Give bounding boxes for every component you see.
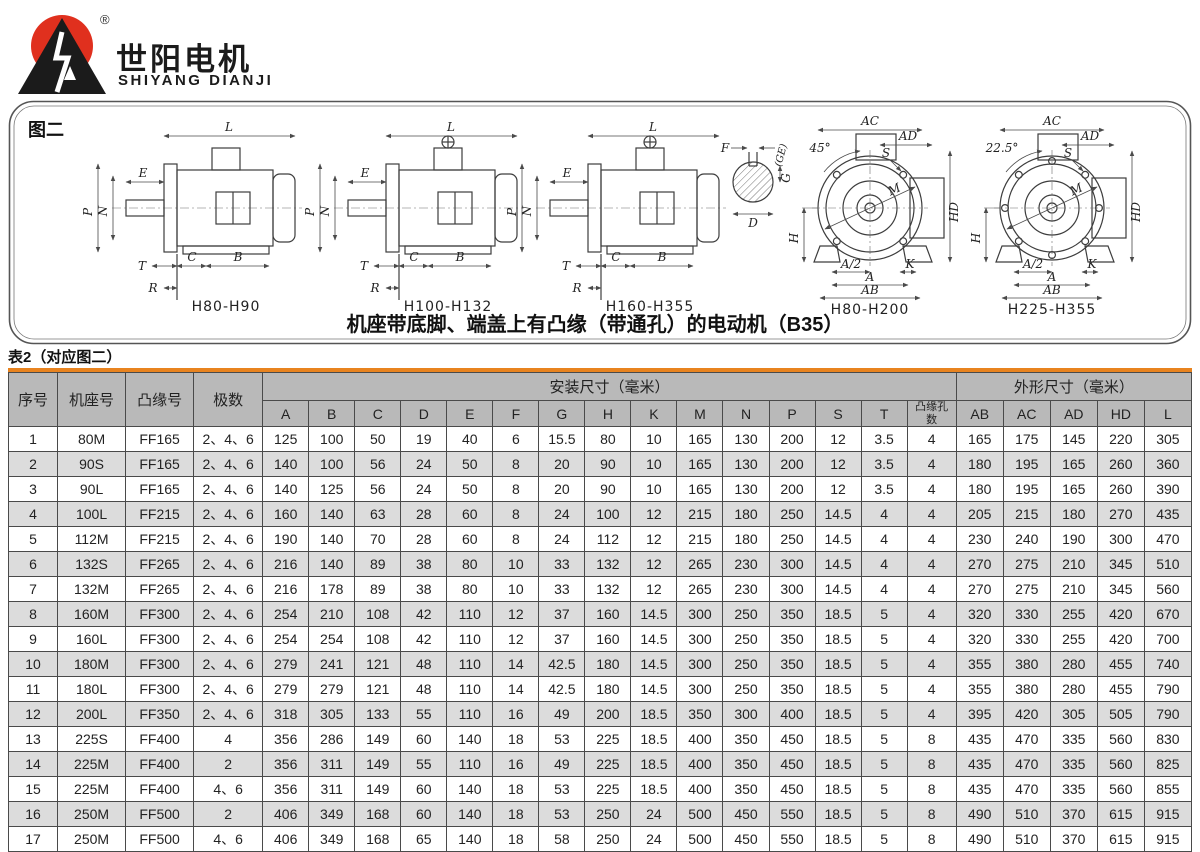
table-cell: 80 (585, 427, 631, 452)
table-cell: 19 (401, 427, 447, 452)
table-row: 9160LFF3002、4、625425410842110123716014.5… (9, 627, 1192, 652)
dim-T: T (360, 259, 369, 273)
table-cell: 490 (956, 802, 1003, 827)
table-cell: 4 (907, 577, 956, 602)
table-cell: 2 (9, 452, 58, 477)
table-cell: 615 (1097, 827, 1144, 852)
table-row: 10180MFF3002、4、6279241121481101442.51801… (9, 652, 1192, 677)
table-cell: 380 (1003, 677, 1050, 702)
table-cell: 125 (309, 477, 355, 502)
side-view-h100-h132: L E P N T C B R H100-H132 (303, 120, 524, 315)
table-cell: 350 (723, 752, 769, 777)
dim-L: L (648, 120, 657, 134)
dim-S: S (882, 146, 890, 160)
table-cell: 286 (309, 727, 355, 752)
table-cell: 5 (861, 752, 907, 777)
table-cell: 360 (1144, 452, 1191, 477)
table-cell: 165 (956, 427, 1003, 452)
dim-angle: 45° (808, 141, 830, 155)
table-cell: 420 (1097, 627, 1144, 652)
table-cell: 24 (631, 827, 677, 852)
table-cell: 300 (723, 702, 769, 727)
table-cell: 4 (907, 677, 956, 702)
table-cell: 350 (723, 727, 769, 752)
col-header-B: B (309, 401, 355, 427)
table-cell: 12 (493, 602, 539, 627)
col-header-HD: HD (1097, 401, 1144, 427)
table-cell: 14.5 (631, 677, 677, 702)
table-cell: 60 (401, 727, 447, 752)
table-cell: 12 (493, 627, 539, 652)
table-cell: FF300 (126, 652, 194, 677)
table-cell: 200 (769, 427, 815, 452)
table-cell: 160M (58, 602, 126, 627)
table-cell: 200 (769, 477, 815, 502)
table-row: 5112MFF2152、4、61901407028608241121221518… (9, 527, 1192, 552)
table-cell: 225 (585, 777, 631, 802)
table-cell: 345 (1097, 552, 1144, 577)
table-cell: 24 (401, 477, 447, 502)
table-cell: 12 (9, 702, 58, 727)
dim-C: C (187, 250, 196, 264)
dim-AC: AC (1042, 114, 1061, 128)
table-cell: 145 (1050, 427, 1097, 452)
table-cell: 10 (493, 577, 539, 602)
table-cell: 500 (677, 802, 723, 827)
table-cell: 254 (263, 602, 309, 627)
table-cell: 4、6 (194, 777, 263, 802)
table-cell: 18.5 (631, 777, 677, 802)
table-cell: FF400 (126, 727, 194, 752)
table-cell: 279 (263, 677, 309, 702)
table-cell: 560 (1097, 727, 1144, 752)
dim-A: A (865, 270, 875, 284)
col-header-C: C (355, 401, 401, 427)
table-cell: 265 (677, 577, 723, 602)
table-cell: 33 (539, 552, 585, 577)
table-cell: 108 (355, 602, 401, 627)
table-cell: 2、4、6 (194, 677, 263, 702)
table-cell: 20 (539, 452, 585, 477)
table-cell: 18.5 (815, 602, 861, 627)
dim-R: R (369, 281, 379, 295)
table-cell: 435 (1144, 502, 1191, 527)
col-header-P: P (769, 401, 815, 427)
table-cell: 740 (1144, 652, 1191, 677)
table-cell: FF215 (126, 502, 194, 527)
table-cell: 700 (1144, 627, 1191, 652)
table-cell: 790 (1144, 677, 1191, 702)
table-cell: 149 (355, 727, 401, 752)
table-cell: 18 (493, 727, 539, 752)
dim-angle: 22.5° (985, 141, 1019, 155)
table-cell: 14.5 (815, 552, 861, 577)
table-cell: 90S (58, 452, 126, 477)
table-cell: 60 (401, 777, 447, 802)
table-row: 180MFF1652、4、6125100501940615.5801016513… (9, 427, 1192, 452)
table-cell: 18.5 (815, 802, 861, 827)
table-cell: 53 (539, 727, 585, 752)
table-cell: 133 (355, 702, 401, 727)
table-cell: 350 (769, 602, 815, 627)
table-cell: 8 (907, 752, 956, 777)
table-cell: 56 (355, 477, 401, 502)
table-cell: 450 (769, 727, 815, 752)
table-cell: 335 (1050, 727, 1097, 752)
table-cell: 260 (1097, 452, 1144, 477)
table-cell: 12 (631, 527, 677, 552)
table-cell: 18.5 (815, 627, 861, 652)
table-cell: 28 (401, 527, 447, 552)
dim-P: P (505, 207, 519, 217)
table-cell: 2、4、6 (194, 652, 263, 677)
table-cell: 18.5 (631, 727, 677, 752)
table-row: 11180LFF3002、4、6279279121481101442.51801… (9, 677, 1192, 702)
eyebolt-icon (442, 136, 454, 148)
brand-header: ® 世阳电机 SHIYANG DIANJI (12, 6, 432, 98)
table-cell: 38 (401, 552, 447, 577)
table-cell: 3.5 (861, 477, 907, 502)
table-cell: 2、4、6 (194, 477, 263, 502)
table-cell: 2、4、6 (194, 502, 263, 527)
spec-table: 序号 机座号 凸缘号 极数 安装尺寸（毫米） 外形尺寸（毫米） A B C D … (8, 372, 1192, 852)
table-cell: 37 (539, 602, 585, 627)
table-cell: FF165 (126, 452, 194, 477)
side-view-name: H160-H355 (606, 299, 695, 315)
table-cell: FF300 (126, 627, 194, 652)
table-cell: 318 (263, 702, 309, 727)
table-cell: 195 (1003, 452, 1050, 477)
table-cell: 4 (907, 427, 956, 452)
table-cell: 250 (723, 652, 769, 677)
dim-N: N (520, 205, 534, 217)
table-cell: 2、4、6 (194, 452, 263, 477)
table-cell: 110 (447, 677, 493, 702)
table-cell: 10 (631, 452, 677, 477)
table-body: 180MFF1652、4、6125100501940615.5801016513… (9, 427, 1192, 852)
col-header-E: E (447, 401, 493, 427)
table-cell: 254 (263, 627, 309, 652)
table-cell: 420 (1003, 702, 1050, 727)
table-cell: 180 (585, 677, 631, 702)
table-cell: 250 (769, 527, 815, 552)
dim-C: C (611, 250, 620, 264)
table-cell: 670 (1144, 602, 1191, 627)
table-cell: 190 (1050, 527, 1097, 552)
table-cell: 42 (401, 602, 447, 627)
shiyang-logo-icon: ® (12, 6, 112, 98)
table-cell: 200 (769, 452, 815, 477)
table-cell: 140 (447, 727, 493, 752)
table-cell: 2、4、6 (194, 602, 263, 627)
table-cell: 14 (493, 652, 539, 677)
table-cell: 50 (447, 477, 493, 502)
dim-AD: AD (898, 129, 918, 143)
table-cell: 80 (447, 552, 493, 577)
table-cell: 455 (1097, 652, 1144, 677)
table-cell: 18.5 (815, 702, 861, 727)
table-cell: 8 (9, 602, 58, 627)
table-cell: 110 (447, 627, 493, 652)
table-cell: 435 (956, 727, 1003, 752)
dim-S: S (1064, 146, 1072, 160)
table-cell: 132S (58, 552, 126, 577)
table-cell: 100 (309, 452, 355, 477)
table-cell: 12 (815, 427, 861, 452)
table-cell: 4 (861, 577, 907, 602)
table-cell: 300 (677, 627, 723, 652)
table-row: 14225MFF400235631114955110164922518.5400… (9, 752, 1192, 777)
table-cell: 18.5 (631, 752, 677, 777)
table-cell: 305 (1144, 427, 1191, 452)
table-cell: 250 (585, 827, 631, 852)
table-cell: 70 (355, 527, 401, 552)
table-cell: 53 (539, 777, 585, 802)
side-view-h160-h355: L E P N T C B R H160-H355 (505, 120, 726, 315)
table-cell: 90 (585, 477, 631, 502)
table-cell: 132 (585, 577, 631, 602)
table-cell: 168 (355, 802, 401, 827)
table-cell: 63 (355, 502, 401, 527)
table-cell: 24 (631, 802, 677, 827)
table-cell: 4 (907, 627, 956, 652)
table-cell: 48 (401, 652, 447, 677)
table-cell: 210 (309, 602, 355, 627)
table-cell: 168 (355, 827, 401, 852)
table-cell: 5 (861, 602, 907, 627)
table-cell: 121 (355, 652, 401, 677)
table-cell: 4 (861, 552, 907, 577)
table-cell: 395 (956, 702, 1003, 727)
table-cell: 615 (1097, 802, 1144, 827)
dim-G: G (779, 173, 793, 183)
table-cell: 300 (1097, 527, 1144, 552)
table-cell: 3 (9, 477, 58, 502)
table-cell: 140 (309, 502, 355, 527)
table-cell: 8 (493, 477, 539, 502)
table-cell: 510 (1003, 802, 1050, 827)
table-cell: 225M (58, 777, 126, 802)
table-cell: 28 (401, 502, 447, 527)
table-cell: 132M (58, 577, 126, 602)
table-cell: 18 (493, 827, 539, 852)
table-cell: 250M (58, 802, 126, 827)
table-cell: 132 (585, 552, 631, 577)
table-cell: 24 (401, 452, 447, 477)
table-cell: 11 (9, 677, 58, 702)
table-cell: 305 (309, 702, 355, 727)
table-cell: 550 (769, 827, 815, 852)
table-cell: 16 (493, 702, 539, 727)
table-cell: 380 (1003, 652, 1050, 677)
table-cell: 356 (263, 727, 309, 752)
dim-R: R (571, 281, 581, 295)
table-cell: 230 (723, 577, 769, 602)
table-cell: 5 (861, 802, 907, 827)
table-cell: 60 (447, 527, 493, 552)
table-cell: 350 (769, 677, 815, 702)
table-cell: 130 (723, 477, 769, 502)
table-cell: 270 (956, 577, 1003, 602)
dim-M: M (885, 180, 904, 199)
table-cell: FF400 (126, 777, 194, 802)
table-cell: 12 (815, 477, 861, 502)
table-cell: 320 (956, 602, 1003, 627)
table-cell: 510 (1003, 827, 1050, 852)
table-cell: 110 (447, 602, 493, 627)
col-header-AB: AB (956, 401, 1003, 427)
table-cell: 420 (1097, 602, 1144, 627)
table-cell: 24 (539, 502, 585, 527)
dim-D: D (747, 216, 758, 230)
table-cell: 330 (1003, 602, 1050, 627)
table-cell: 2 (194, 752, 263, 777)
table-cell: 560 (1097, 777, 1144, 802)
figure-2-drawing: 图二 L E P N T C B R H80-H90 L E P (8, 100, 1192, 345)
table-cell: 225M (58, 752, 126, 777)
dim-A2: A/2 (840, 257, 861, 271)
table-cell: 55 (401, 702, 447, 727)
table-cell: 2、4、6 (194, 702, 263, 727)
table-cell: 190 (263, 527, 309, 552)
dim-H: H (787, 232, 801, 244)
col-header-G: G (539, 401, 585, 427)
table-cell: FF300 (126, 602, 194, 627)
table-cell: 300 (769, 552, 815, 577)
table-cell: 355 (956, 652, 1003, 677)
table-cell: 350 (769, 627, 815, 652)
table-cell: 18.5 (815, 677, 861, 702)
table-cell: 8 (907, 777, 956, 802)
table-cell: 140 (447, 827, 493, 852)
table-row: 6132SFF2652、4、62161408938801033132122652… (9, 552, 1192, 577)
table-cell: 250 (585, 802, 631, 827)
table-cell: 320 (956, 627, 1003, 652)
table-cell: 450 (723, 802, 769, 827)
table-cell: 5 (861, 827, 907, 852)
table-cell: 210 (1050, 577, 1097, 602)
table-cell: 13 (9, 727, 58, 752)
table-cell: 140 (447, 802, 493, 827)
table-cell: 3.5 (861, 427, 907, 452)
table-cell: 160 (585, 627, 631, 652)
col-header-flange-holes: 凸缘孔数 (907, 401, 956, 427)
table-cell: 60 (401, 802, 447, 827)
table-cell: 5 (861, 777, 907, 802)
table-cell: 165 (1050, 452, 1097, 477)
col-header-D: D (401, 401, 447, 427)
table-cell: 230 (956, 527, 1003, 552)
table-cell: 14.5 (815, 502, 861, 527)
table-cell: 2、4、6 (194, 527, 263, 552)
dim-A2: A/2 (1022, 257, 1043, 271)
table-cell: 10 (631, 427, 677, 452)
table-cell: 4 (9, 502, 58, 527)
table-cell: 140 (263, 452, 309, 477)
dim-P: P (303, 207, 317, 217)
figure-label: 图二 (28, 120, 64, 140)
table-cell: 200L (58, 702, 126, 727)
table-cell: 450 (769, 752, 815, 777)
table-cell: 16 (493, 752, 539, 777)
table-cell: 180 (956, 452, 1003, 477)
table-cell: 225S (58, 727, 126, 752)
table-cell: 112M (58, 527, 126, 552)
table-row: 16250MFF50024063491686014018532502450045… (9, 802, 1192, 827)
table-cell: 790 (1144, 702, 1191, 727)
table-cell: 18 (493, 802, 539, 827)
table-cell: 4 (907, 702, 956, 727)
dim-H: H (969, 232, 983, 244)
col-header-poles: 极数 (194, 373, 263, 427)
table-cell: 180 (723, 527, 769, 552)
table-cell: 250 (723, 602, 769, 627)
table-cell: 349 (309, 827, 355, 852)
table-cell: 89 (355, 577, 401, 602)
table-cell: 5 (9, 527, 58, 552)
dim-K: K (1087, 257, 1098, 271)
table-cell: 1 (9, 427, 58, 452)
table-cell: 110 (447, 752, 493, 777)
table-cell: FF265 (126, 577, 194, 602)
table-cell: 180L (58, 677, 126, 702)
table-cell: 14.5 (631, 652, 677, 677)
table-row: 390LFF1652、4、614012556245082090101651302… (9, 477, 1192, 502)
dim-B: B (657, 250, 667, 264)
table-cell: 80 (447, 577, 493, 602)
table-cell: 8 (907, 802, 956, 827)
col-header-M: M (677, 401, 723, 427)
table-cell: FF500 (126, 802, 194, 827)
table-cell: 5 (861, 702, 907, 727)
table-cell: 42.5 (539, 652, 585, 677)
table-cell: 2、4、6 (194, 627, 263, 652)
table-cell: 130 (723, 427, 769, 452)
table-cell: 400 (769, 702, 815, 727)
table-cell: 915 (1144, 827, 1191, 852)
table-cell: FF500 (126, 827, 194, 852)
table-cell: 825 (1144, 752, 1191, 777)
table-cell: 165 (677, 452, 723, 477)
table-cell: 14 (493, 677, 539, 702)
figure-caption: 机座带底脚、端盖上有凸缘（带通孔）的电动机（B35） (347, 312, 844, 336)
table-cell: 349 (309, 802, 355, 827)
table-cell: 14.5 (631, 602, 677, 627)
table-cell: 490 (956, 827, 1003, 852)
table-cell: 355 (956, 677, 1003, 702)
table-cell: 4 (907, 502, 956, 527)
table-cell: 100 (309, 427, 355, 452)
dim-T: T (562, 259, 571, 273)
table-cell: 470 (1003, 727, 1050, 752)
col-header-F: F (493, 401, 539, 427)
table-cell: 200 (585, 702, 631, 727)
table-cell: 80M (58, 427, 126, 452)
table-cell: 16 (9, 802, 58, 827)
table-cell: 42 (401, 627, 447, 652)
table-cell: 2 (194, 802, 263, 827)
front-view-name: H225-H355 (1008, 302, 1097, 318)
dim-E: E (360, 166, 370, 180)
table-cell: 300 (769, 577, 815, 602)
table-cell: 110 (447, 652, 493, 677)
table-cell: 53 (539, 802, 585, 827)
table-cell: 42.5 (539, 677, 585, 702)
table-cell: 178 (309, 577, 355, 602)
table-cell: 14 (9, 752, 58, 777)
col-header-N: N (723, 401, 769, 427)
table-cell: 305 (1050, 702, 1097, 727)
